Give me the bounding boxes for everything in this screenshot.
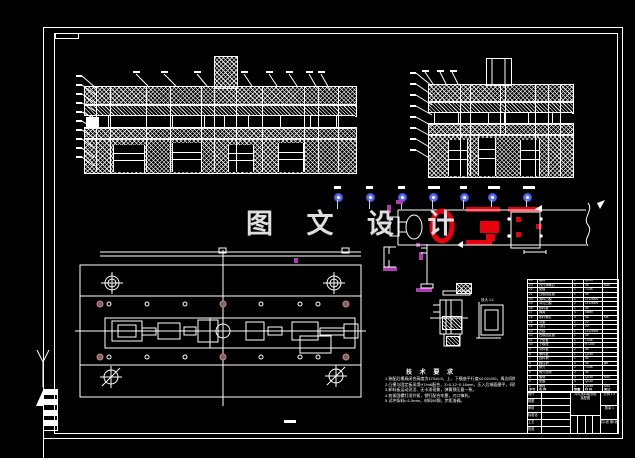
cad-drawing-canvas: 1 2 3 4 5 6 7 [0,0,635,458]
margin-grid [43,389,58,431]
watermark-text: 图 文 设 计 [246,202,468,241]
note-line: 1.装配后模具闭合高度为170±0.5，上、下模座平行度≤0.02/100，周边… [385,376,515,382]
notes-title: 技 术 要 求 [406,367,456,376]
note-line: 5.试冲条料t=1.5mm，材料08钢，步距准确。 [385,398,515,404]
title-block-signatures: 设计 制图 审核 标准化 工艺 批准 [528,392,571,433]
parts-list-table: 序号名 称 数量材 料 备注 1螺栓 4Q235 M10 2垫圈 4Q235 3… [527,279,619,393]
notes-lines: 1.装配后模具闭合高度为170±0.5，上、下模座平行度≤0.02/100，周边… [385,376,515,404]
detail-scale-label: 放大 1:1 [481,298,494,302]
title-block-info: 比例 1:1 数量 1 共1张 第1张 [601,392,618,433]
title-block: 设计 制图 审核 标准化 工艺 批准 冲孔落料级进模装配图 比例 1:1 数量 … [527,391,619,434]
title-block-name: 冲孔落料级进模装配图 [571,392,601,433]
